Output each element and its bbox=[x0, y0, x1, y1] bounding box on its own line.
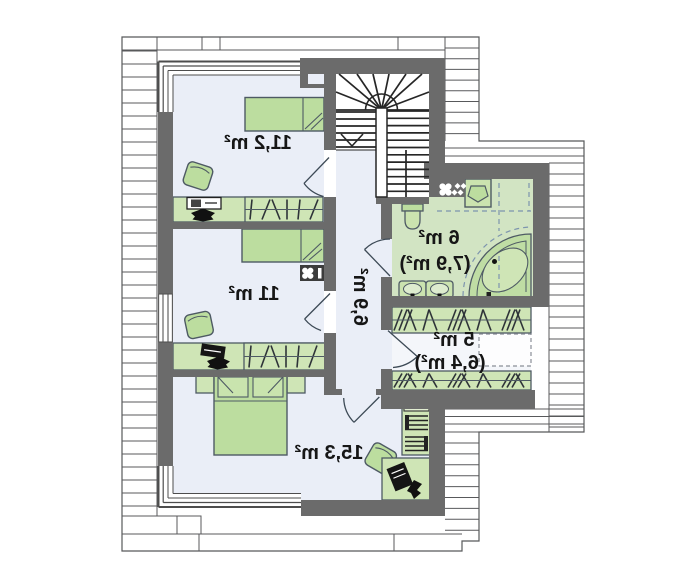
svg-text:(7,9 m²): (7,9 m²) bbox=[399, 253, 470, 275]
svg-text:11 m²: 11 m² bbox=[228, 283, 279, 305]
svg-text:(6,4 m²): (6,4 m²) bbox=[414, 352, 485, 374]
svg-text:6 m²: 6 m² bbox=[418, 227, 459, 249]
svg-text:15,3 m²: 15,3 m² bbox=[294, 442, 363, 464]
svg-text:5 m²: 5 m² bbox=[433, 329, 474, 351]
svg-text:6,9 m²: 6,9 m² bbox=[349, 268, 371, 326]
svg-text:11,2 m²: 11,2 m² bbox=[224, 132, 292, 154]
